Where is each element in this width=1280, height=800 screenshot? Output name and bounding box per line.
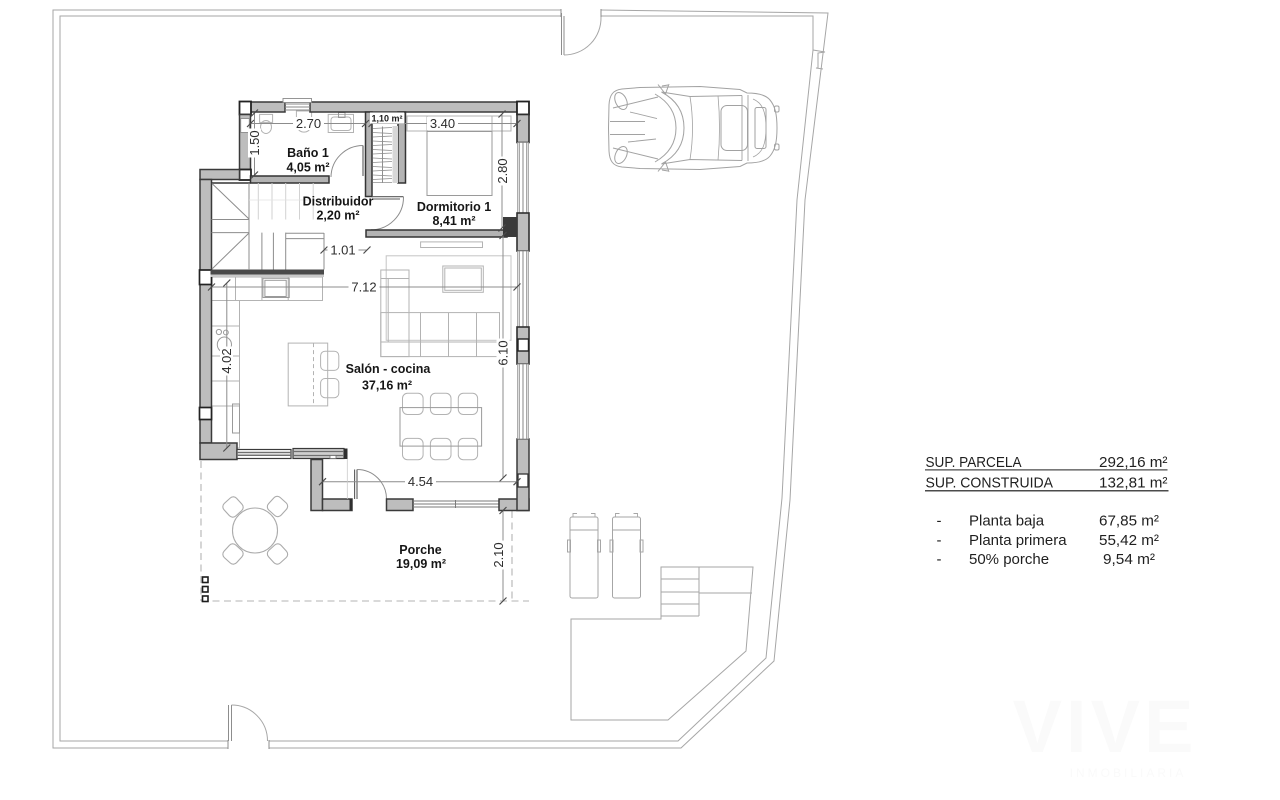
svg-text:4.02: 4.02 [219,348,234,373]
svg-text:1,10 m²: 1,10 m² [371,114,402,124]
svg-text:Porche: Porche [399,543,441,557]
svg-text:SUP. CONSTRUIDA: SUP. CONSTRUIDA [926,474,1054,491]
svg-text:VIVE: VIVE [1013,685,1198,768]
svg-text:Salón - cocina: Salón - cocina [346,362,432,376]
svg-text:19,09 m²: 19,09 m² [396,557,446,571]
svg-text:3.40: 3.40 [430,116,455,131]
svg-text:Dormitorio 1: Dormitorio 1 [417,200,491,214]
svg-text:55,42 m²: 55,42 m² [1099,532,1159,549]
svg-text:2.10: 2.10 [491,542,506,567]
svg-text:-: - [937,532,942,549]
svg-text:9,54 m²: 9,54 m² [1103,551,1155,568]
svg-text:Planta baja: Planta baja [969,513,1045,530]
svg-text:2.80: 2.80 [495,158,510,183]
svg-text:Distribuidor: Distribuidor [303,195,374,209]
svg-text:1.01: 1.01 [330,243,355,258]
svg-text:Baño 1: Baño 1 [287,146,329,160]
svg-text:7.12: 7.12 [351,280,376,295]
svg-text:37,16 m²: 37,16 m² [362,379,412,393]
svg-text:SUP. PARCELA: SUP. PARCELA [926,454,1022,471]
svg-text:4.54: 4.54 [408,474,433,489]
svg-text:INMOBILIARIA: INMOBILIARIA [1070,766,1187,780]
svg-text:292,16 m²: 292,16 m² [1099,454,1168,471]
svg-text:Planta primera: Planta primera [969,532,1067,549]
svg-text:-: - [937,551,942,568]
svg-text:8,41 m²: 8,41 m² [432,214,475,228]
svg-text:4,05 m²: 4,05 m² [286,161,329,175]
svg-text:2,20 m²: 2,20 m² [316,209,359,223]
svg-text:1.50: 1.50 [247,130,262,155]
svg-text:132,81 m²: 132,81 m² [1099,474,1168,491]
svg-text:-: - [937,513,942,530]
svg-text:67,85 m²: 67,85 m² [1099,513,1159,530]
svg-text:2.70: 2.70 [296,116,321,131]
svg-text:6.10: 6.10 [496,340,511,365]
svg-text:50% porche: 50% porche [969,551,1049,568]
